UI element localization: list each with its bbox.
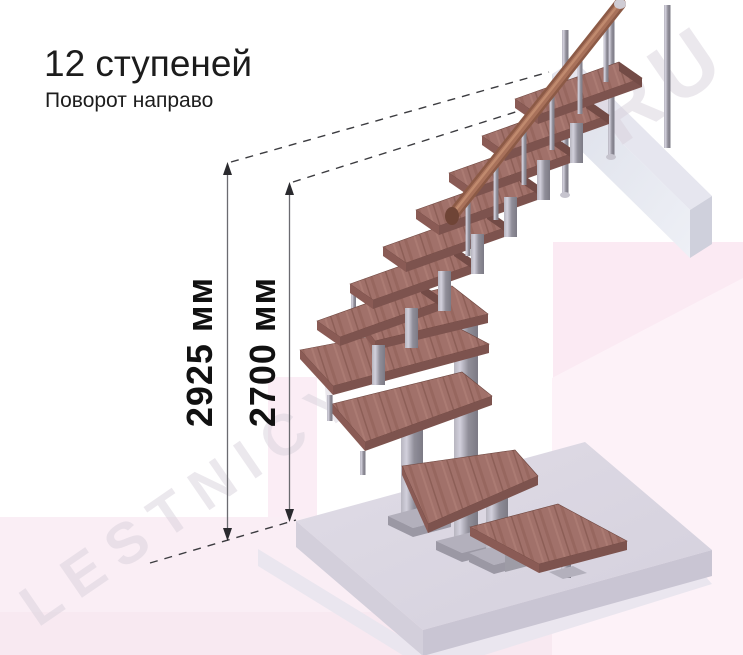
page-title: 12 ступеней (44, 43, 252, 84)
tread-support-post (438, 271, 451, 311)
baluster-collar (560, 192, 570, 198)
winder-connector-rod (360, 451, 366, 475)
arrow-up-icon (223, 162, 232, 175)
tread-support-post (504, 197, 517, 237)
page-subtitle: Поворот направо (45, 89, 213, 112)
tread-support-post (405, 308, 418, 348)
tread-support-post (471, 234, 484, 274)
baluster-collar (606, 154, 616, 160)
tread-support-post (372, 345, 385, 385)
winder-connector-rod (327, 395, 333, 421)
dimension-label-2700: 2700 мм (242, 277, 283, 427)
staircase-diagram-page: LESTNICY RU (0, 0, 743, 655)
diagram-canvas: LESTNICY RU (0, 0, 743, 655)
dimension-label-2925: 2925 мм (179, 277, 220, 427)
rail-post-right (664, 5, 671, 148)
handrail-end-cap (445, 207, 459, 225)
title-block: 12 ступеней Поворот направо (44, 43, 252, 112)
tread-support-post (570, 123, 583, 163)
arrow-up-icon (285, 182, 294, 195)
dimension-labels: 2925 мм 2700 мм (179, 277, 283, 427)
tread-support-post (537, 160, 550, 200)
